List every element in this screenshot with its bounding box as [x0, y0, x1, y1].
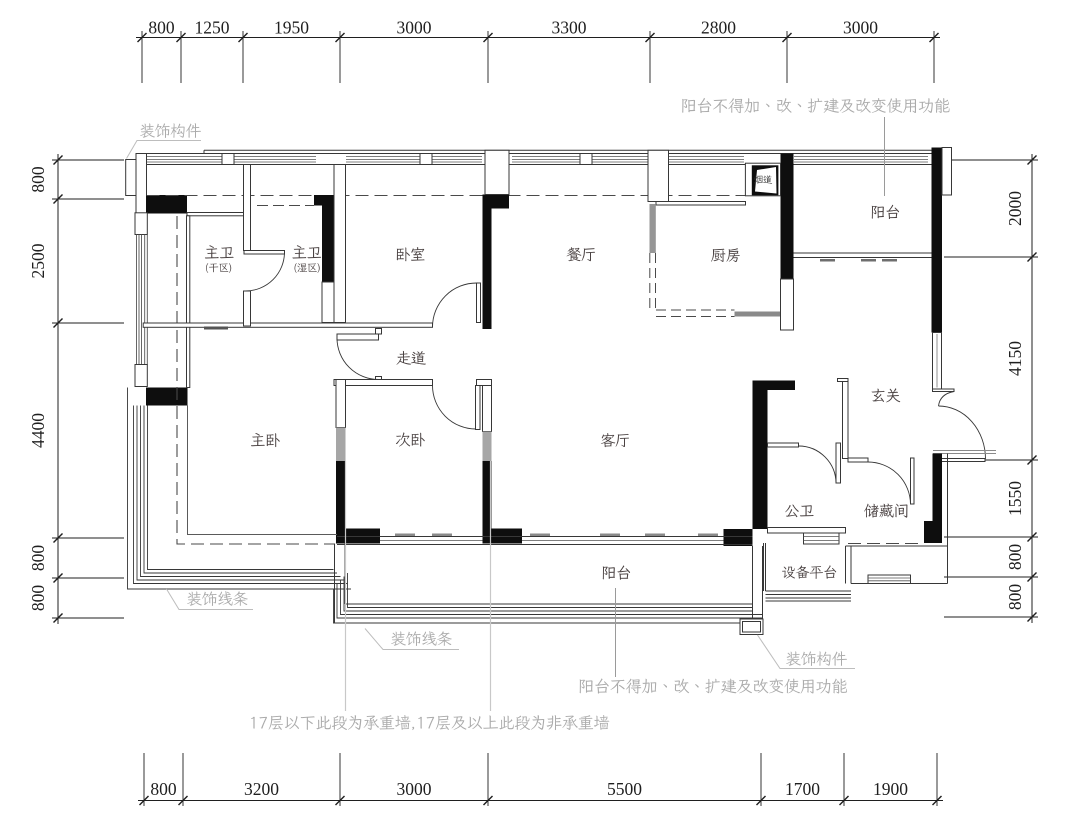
svg-text:3300: 3300 [552, 18, 587, 38]
svg-text:800: 800 [28, 585, 48, 612]
svg-text:3200: 3200 [244, 779, 279, 799]
svg-text:800: 800 [28, 545, 48, 572]
svg-text:4400: 4400 [28, 413, 48, 448]
svg-text:2800: 2800 [701, 18, 736, 38]
svg-text:800: 800 [148, 18, 175, 38]
svg-text:4150: 4150 [1005, 341, 1025, 376]
svg-text:800: 800 [1005, 544, 1025, 571]
svg-text:5500: 5500 [607, 779, 642, 799]
svg-text:1900: 1900 [873, 779, 908, 799]
svg-text:2000: 2000 [1005, 191, 1025, 226]
svg-text:1700: 1700 [785, 779, 820, 799]
svg-text:800: 800 [28, 166, 48, 193]
svg-text:1250: 1250 [195, 18, 230, 38]
svg-text:800: 800 [150, 779, 177, 799]
svg-text:3000: 3000 [397, 18, 432, 38]
svg-text:800: 800 [1005, 584, 1025, 611]
svg-text:1950: 1950 [274, 18, 309, 38]
svg-text:3000: 3000 [397, 779, 432, 799]
svg-text:3000: 3000 [843, 18, 878, 38]
svg-text:1550: 1550 [1005, 481, 1025, 516]
svg-text:2500: 2500 [28, 243, 48, 278]
